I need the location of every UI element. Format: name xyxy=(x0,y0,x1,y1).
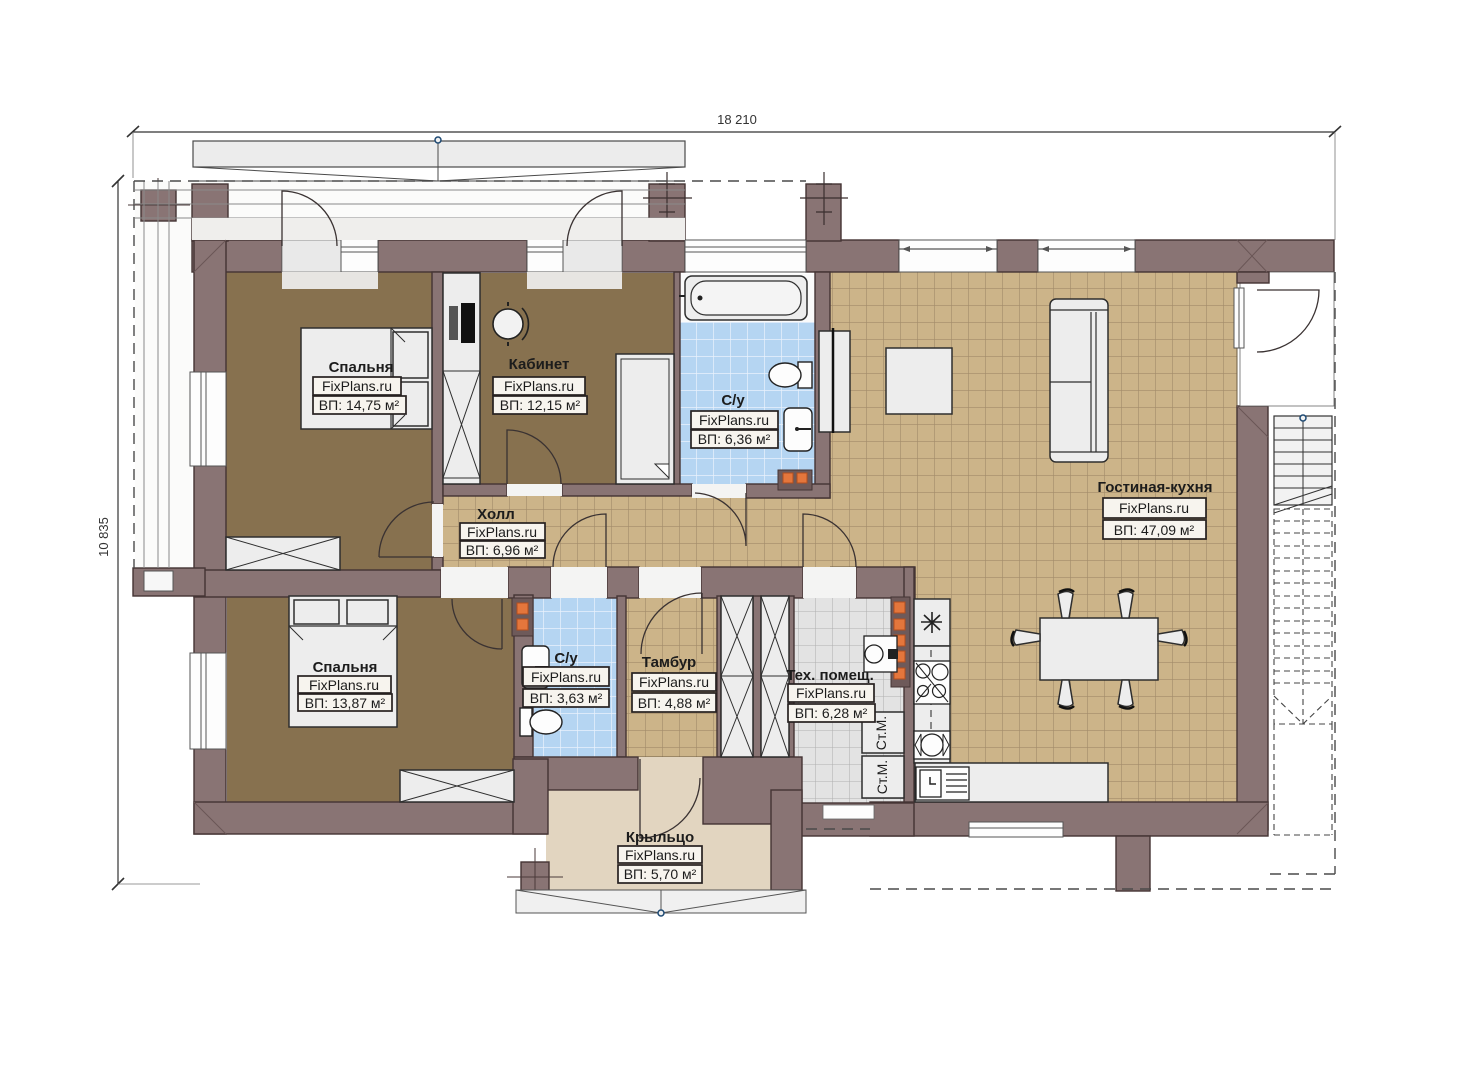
svg-text:ВП: 12,15 м²: ВП: 12,15 м² xyxy=(500,397,581,413)
svg-text:FixPlans.ru: FixPlans.ru xyxy=(531,669,601,685)
svg-text:FixPlans.ru: FixPlans.ru xyxy=(625,847,695,863)
svg-text:Ст.М.: Ст.М. xyxy=(874,760,890,794)
svg-text:ВП: 4,88 м²: ВП: 4,88 м² xyxy=(638,695,711,711)
svg-text:ВП: 3,63 м²: ВП: 3,63 м² xyxy=(530,690,603,706)
svg-text:FixPlans.ru: FixPlans.ru xyxy=(467,524,537,540)
svg-text:FixPlans.ru: FixPlans.ru xyxy=(322,378,392,394)
svg-text:Крыльцо: Крыльцо xyxy=(626,829,694,846)
svg-text:Холл: Холл xyxy=(477,506,515,523)
svg-text:С/у: С/у xyxy=(721,392,745,409)
svg-text:ВП: 6,96 м²: ВП: 6,96 м² xyxy=(466,542,539,558)
svg-text:Кабинет: Кабинет xyxy=(509,356,570,373)
svg-text:С/у: С/у xyxy=(554,650,578,667)
svg-text:Спальня: Спальня xyxy=(329,359,394,376)
svg-text:ВП: 14,75 м²: ВП: 14,75 м² xyxy=(319,397,400,413)
svg-text:FixPlans.ru: FixPlans.ru xyxy=(796,685,866,701)
svg-text:ВП: 6,36 м²: ВП: 6,36 м² xyxy=(698,431,771,447)
svg-text:Гостиная-кухня: Гостиная-кухня xyxy=(1098,479,1213,496)
svg-text:18 210: 18 210 xyxy=(717,112,757,127)
svg-text:ВП: 47,09 м²: ВП: 47,09 м² xyxy=(1114,522,1195,538)
svg-text:Тамбур: Тамбур xyxy=(642,654,696,671)
svg-text:FixPlans.ru: FixPlans.ru xyxy=(1119,500,1189,516)
svg-text:FixPlans.ru: FixPlans.ru xyxy=(639,674,709,690)
svg-text:10 835: 10 835 xyxy=(96,517,111,557)
svg-text:FixPlans.ru: FixPlans.ru xyxy=(504,378,574,394)
svg-text:FixPlans.ru: FixPlans.ru xyxy=(699,412,769,428)
svg-text:ВП: 5,70 м²: ВП: 5,70 м² xyxy=(624,866,697,882)
svg-text:Спальня: Спальня xyxy=(313,659,378,676)
svg-text:ВП: 6,28 м²: ВП: 6,28 м² xyxy=(795,705,868,721)
svg-text:Тех. помещ.: Тех. помещ. xyxy=(786,667,874,684)
svg-text:ВП: 13,87 м²: ВП: 13,87 м² xyxy=(305,695,386,711)
svg-text:FixPlans.ru: FixPlans.ru xyxy=(309,677,379,693)
